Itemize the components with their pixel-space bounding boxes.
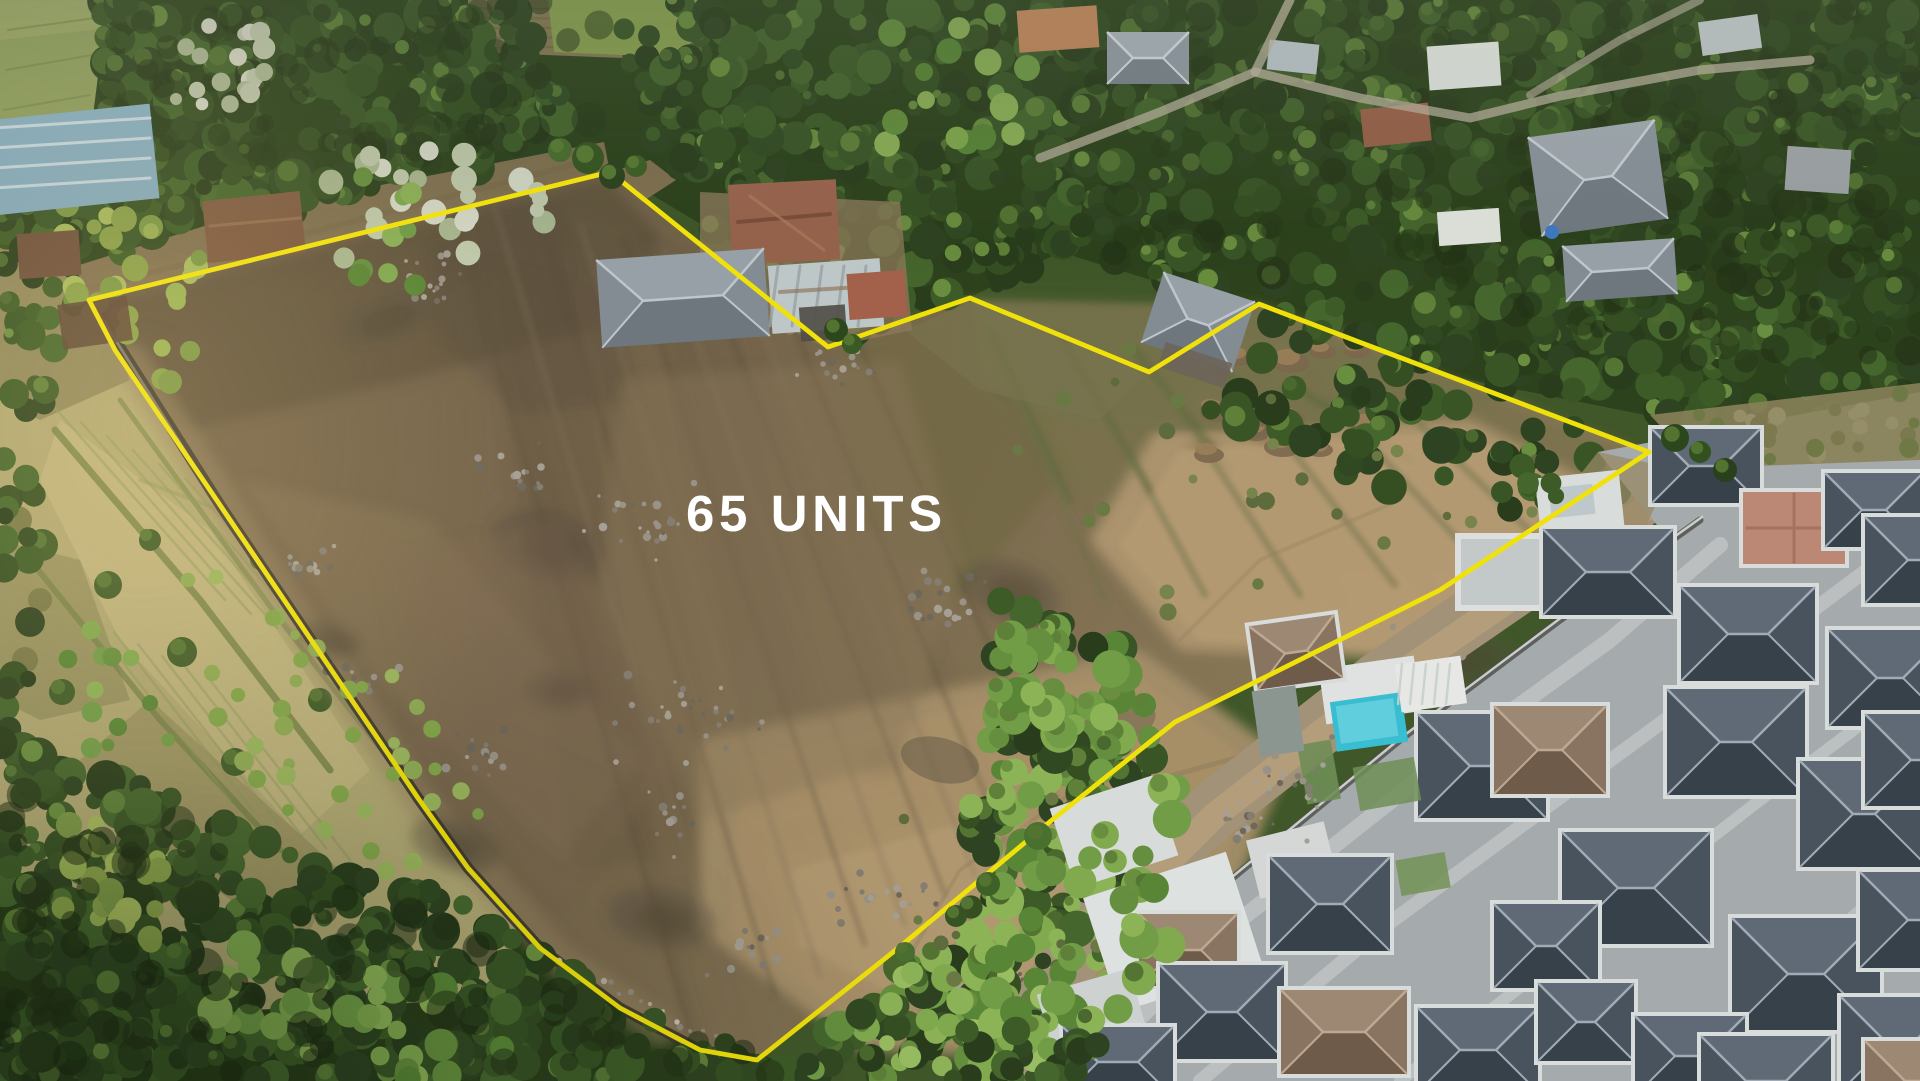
svg-text:65 UNITS: 65 UNITS [686,485,947,542]
